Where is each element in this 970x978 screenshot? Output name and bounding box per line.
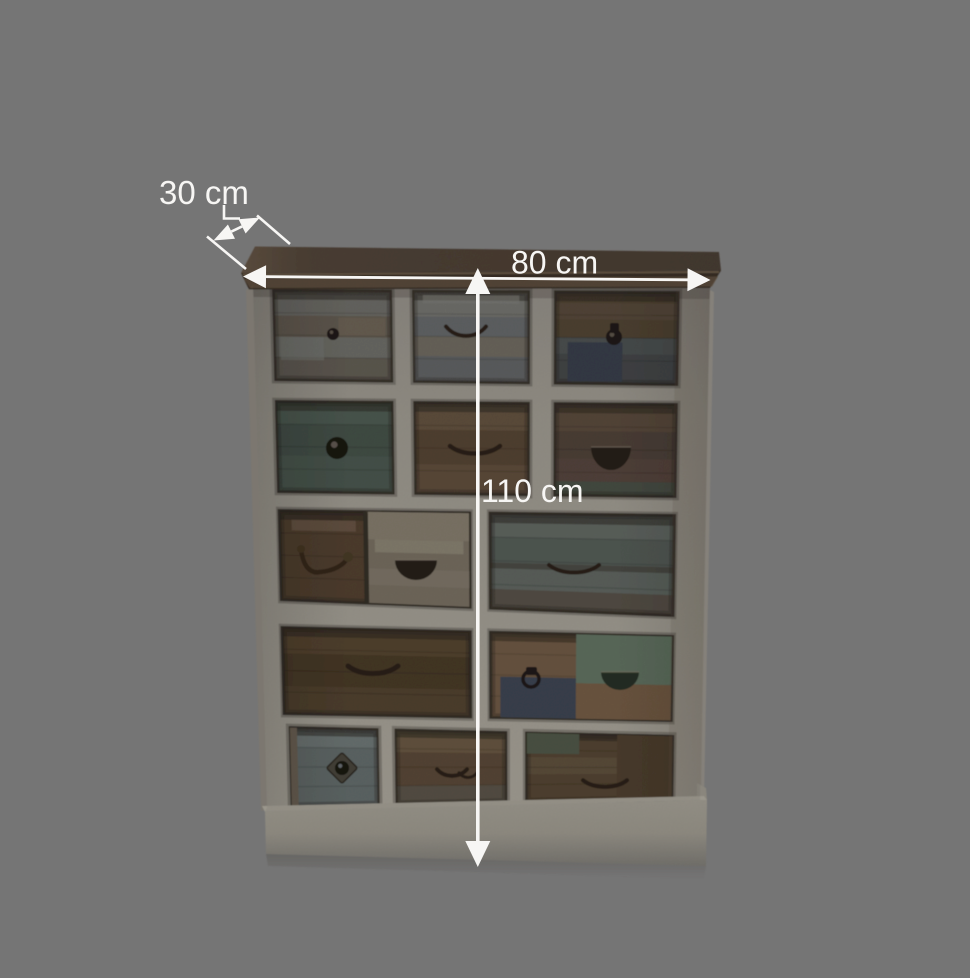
svg-text:110 cm: 110 cm: [481, 473, 584, 509]
svg-text:80 cm: 80 cm: [511, 245, 598, 281]
svg-text:30 cm: 30 cm: [159, 174, 249, 211]
